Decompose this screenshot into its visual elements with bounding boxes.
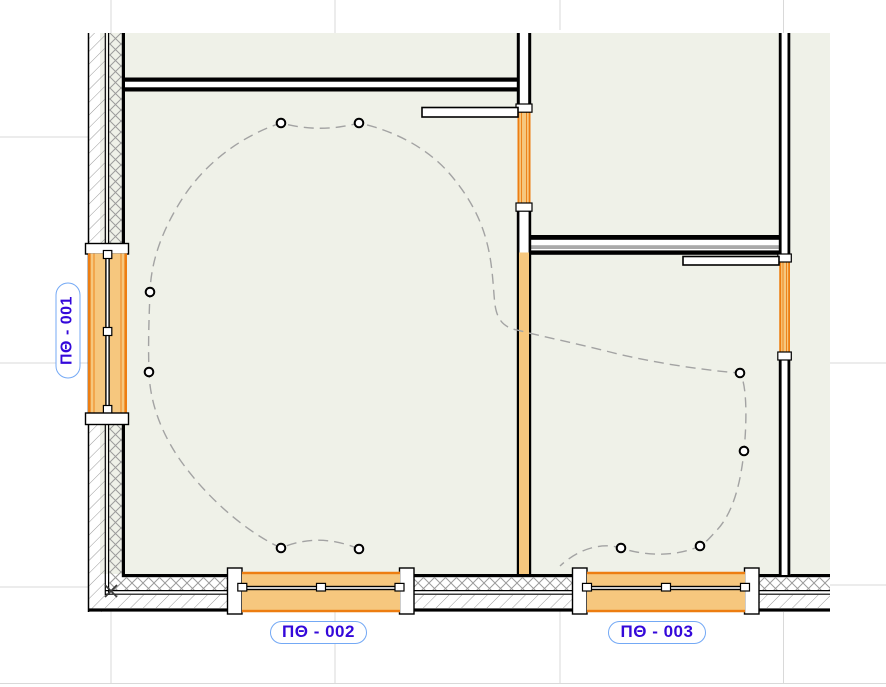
window-sill-edge (88, 254, 91, 414)
window-sill-edge (587, 610, 745, 612)
window-jamb[interactable] (86, 413, 129, 425)
wall-face-line[interactable] (779, 360, 782, 575)
opening-handle[interactable] (778, 254, 792, 262)
wall-lower-gray-line (518, 245, 779, 249)
sash-handle[interactable] (395, 583, 404, 591)
window-sill-edge (124, 254, 127, 414)
sash-handle[interactable] (103, 406, 111, 414)
window-sill-edge (587, 572, 745, 574)
wall-face-line[interactable] (779, 33, 782, 254)
door-frame-edge (529, 112, 531, 203)
door-leaf[interactable] (683, 257, 779, 266)
partition-edge[interactable] (517, 253, 519, 575)
interior-wall-right-horizontal[interactable] (518, 235, 779, 255)
partition-edge[interactable] (529, 253, 531, 575)
door-frame-edge (788, 262, 790, 352)
sash-handle[interactable] (741, 583, 750, 591)
window-001[interactable] (86, 244, 129, 425)
partition-fill[interactable] (519, 253, 529, 575)
wall-face-line[interactable] (529, 211, 532, 253)
sash-handle[interactable] (103, 251, 111, 259)
wall-face-line[interactable] (518, 235, 779, 240)
door-leaf[interactable] (422, 108, 518, 118)
window-003[interactable] (573, 568, 760, 614)
wall-face-line[interactable] (788, 360, 791, 575)
floor-plan-canvas: ПΘ - 001 ПΘ - 002 ПΘ - 003 (0, 0, 886, 687)
lamp-icon[interactable] (617, 544, 626, 553)
wall-face-line[interactable] (124, 87, 518, 91)
wall-face-line[interactable] (528, 33, 531, 112)
sash-handle[interactable] (317, 583, 326, 591)
lamp-icon[interactable] (740, 447, 749, 456)
window-sill-fill[interactable] (587, 572, 745, 612)
window-sill-edge (242, 572, 400, 574)
door-frame-fill[interactable] (518, 112, 531, 203)
wall-face-line[interactable] (517, 33, 520, 112)
window-sill-edge (242, 610, 400, 612)
wall-face-line[interactable] (124, 78, 518, 82)
sash-handle[interactable] (662, 583, 671, 591)
lamp-icon[interactable] (355, 545, 364, 554)
door-frame-edge (518, 112, 520, 203)
lamp-icon[interactable] (146, 288, 155, 297)
lamp-icon[interactable] (277, 119, 286, 128)
interior-wall-top[interactable] (124, 78, 518, 92)
lamp-icon[interactable] (145, 368, 154, 377)
window-label-003[interactable]: ПΘ - 003 (608, 621, 706, 644)
sash-handle[interactable] (103, 328, 111, 336)
sash-handle[interactable] (583, 583, 592, 591)
opening-handle[interactable] (516, 203, 532, 211)
door-frame-edge (779, 262, 781, 352)
lamp-icon[interactable] (277, 544, 286, 553)
lamp-icon[interactable] (696, 542, 705, 551)
wall-face-line[interactable] (517, 211, 520, 253)
window-sill-fill[interactable] (242, 572, 400, 612)
lamp-icon[interactable] (355, 119, 364, 128)
opening-handle[interactable] (778, 352, 792, 360)
window-label-002[interactable]: ПΘ - 002 (270, 621, 367, 644)
floor-plan-drawing (0, 0, 886, 687)
wall-face-line[interactable] (518, 250, 779, 254)
sash-handle[interactable] (238, 583, 247, 591)
window-002[interactable] (228, 568, 415, 614)
window-label-001[interactable]: ПΘ - 001 (55, 282, 80, 378)
wall-face-line[interactable] (788, 33, 791, 254)
lamp-icon[interactable] (736, 369, 745, 378)
